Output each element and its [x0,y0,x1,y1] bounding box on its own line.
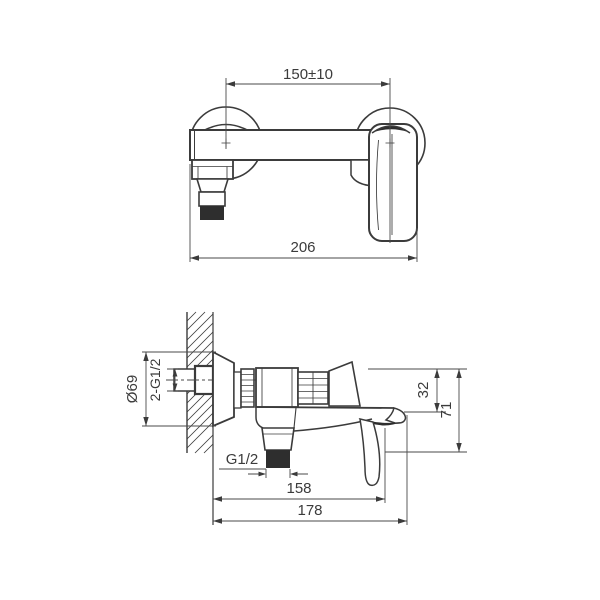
dim-label-wall-to-handle: 158 [286,480,311,497]
arrowhead [213,518,222,523]
shower-mixer-dimension-drawing: 150±10 206 [0,0,600,600]
wall-section [187,312,213,525]
outlet-thread-side [266,450,290,468]
spout-tip [386,408,406,423]
outlet-thread-front [200,206,224,220]
spout-top-edge [256,407,394,408]
arrowhead [226,81,235,86]
spout-left-underside [256,407,263,428]
valve-body-side [256,362,360,407]
arrowhead [408,255,417,260]
arrowhead [376,496,385,501]
dim-label-top-to-spout: 32 [415,382,432,399]
arrowhead [290,472,298,477]
dim-label-overall-width: 206 [290,239,315,256]
escutcheon-neck [234,372,241,408]
technical-drawing-page: 150±10 206 [0,0,600,600]
knurled-nut [241,369,254,407]
outlet-cone-front [197,179,228,192]
shower-outlet-front [192,160,233,220]
lever-handle-front [369,124,417,241]
dim-label-top-to-bottom: 71 [438,402,455,419]
arrowhead [259,472,267,477]
bottom-outlet-side [262,428,294,468]
dim-label-escutcheon-diameter: Ø69 [124,375,141,403]
dim-label-inlet-connections: 2-G1/2 [147,358,163,401]
dim-outlet-thread: G1/2 [219,451,308,478]
arrowhead [398,518,407,523]
side-view: Ø69 2-G1/2 32 71 G1/2 [124,312,467,525]
arrowhead [143,417,148,426]
escutcheon-cone-side [213,352,234,426]
outlet-cup-side [262,428,294,450]
dim-depth-group: 32 71 [368,369,467,452]
dim-label-outlet-thread: G1/2 [226,451,259,468]
arrowhead [213,496,222,501]
arrowhead [456,443,461,452]
handle-base-side [329,362,360,406]
mixer-body-bar [190,130,375,160]
spout-neck-line [294,408,296,428]
arrowhead [456,369,461,378]
dim-label-overall-depth: 178 [297,502,322,519]
arrowhead [434,369,439,378]
dim-label-center-distance: 150±10 [283,66,333,83]
outlet-neck-front [199,192,225,206]
arrowhead [381,81,390,86]
arrowhead [190,255,199,260]
front-view: 150±10 206 [190,66,425,262]
lever-blade-side [360,419,380,485]
